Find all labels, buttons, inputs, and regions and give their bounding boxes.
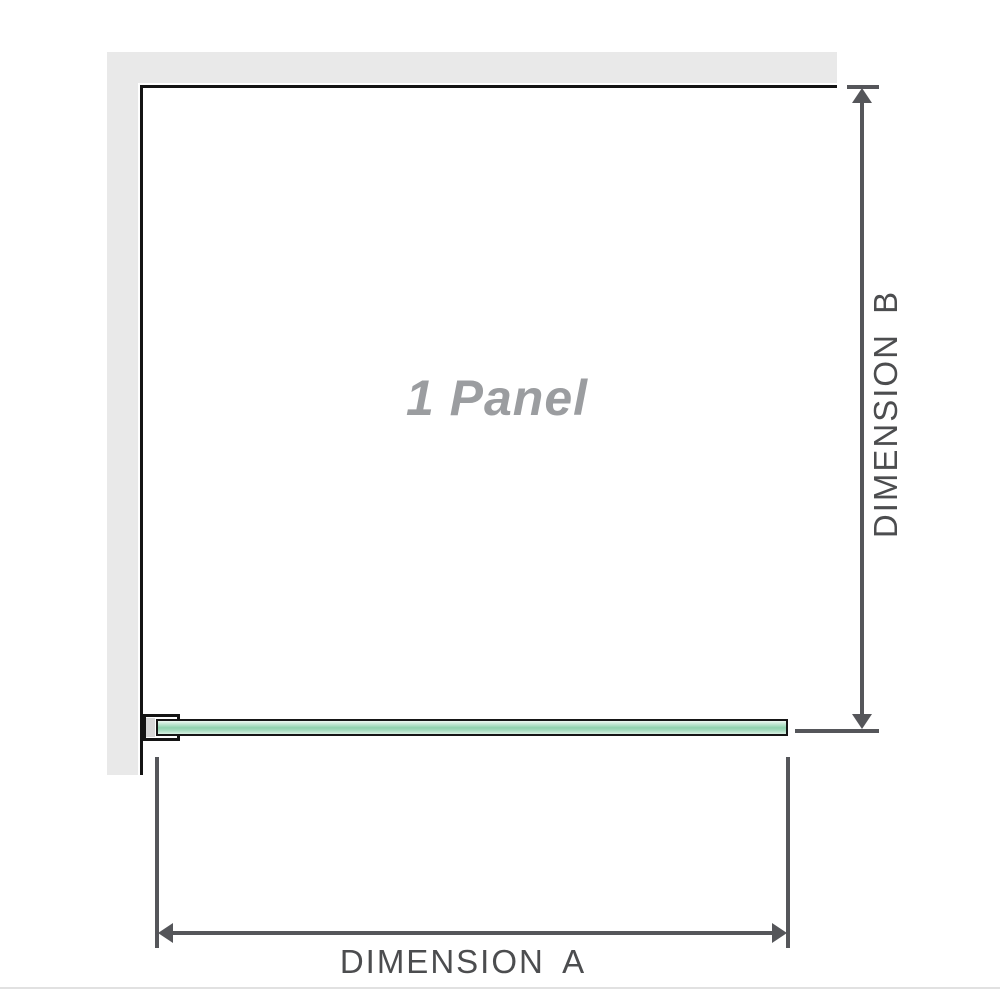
dimension-b-line — [860, 96, 864, 718]
wall-segment-top — [107, 52, 837, 83]
dimension-b-label: DIMENSION B — [867, 290, 905, 538]
bottom-divider-line — [0, 987, 1000, 989]
panel-outline-left-line — [140, 85, 143, 775]
dimension-a-extension-left — [155, 757, 159, 948]
panel-count-label: 1 Panel — [406, 369, 588, 427]
arrowhead-right-icon — [772, 923, 787, 943]
arrowhead-left-icon — [158, 923, 173, 943]
dimension-a-label: DIMENSION A — [340, 943, 586, 981]
arrowhead-down-icon — [852, 714, 872, 729]
wall-segment-left — [107, 52, 138, 775]
wall-bracket-spacer — [146, 718, 155, 737]
panel-outline-top-line — [140, 85, 837, 88]
dimension-b-tick-bottom — [795, 729, 879, 733]
shower-panel-diagram: 1 Panel DIMENSION B DIMENSION A — [0, 0, 1000, 1000]
dimension-a-extension-right — [786, 757, 790, 948]
arrowhead-up-icon — [852, 88, 872, 103]
glass-panel-bar — [156, 719, 788, 736]
dimension-a-line — [162, 931, 784, 935]
